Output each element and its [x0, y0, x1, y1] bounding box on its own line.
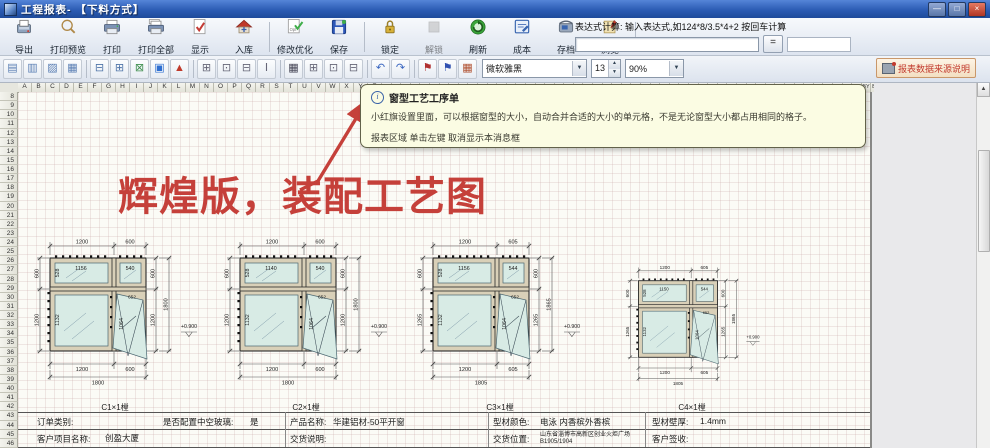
row-header-40[interactable]: 40 — [0, 384, 18, 393]
svg-text:1150: 1150 — [659, 287, 669, 292]
svg-text:600: 600 — [125, 367, 134, 373]
chevron-down-icon[interactable]: ▼ — [572, 61, 586, 76]
unlock-icon — [424, 17, 444, 42]
svg-text:652: 652 — [703, 310, 710, 315]
svg-text:1200: 1200 — [225, 314, 231, 326]
print-icon — [102, 17, 122, 42]
column-header-N[interactable]: N — [200, 82, 214, 92]
row-header-37[interactable]: 37 — [0, 357, 18, 366]
font-size-value: 13 — [592, 60, 608, 77]
svg-text:1265: 1265 — [721, 326, 726, 337]
svg-text:600: 600 — [341, 269, 347, 278]
save-button[interactable]: 保存 — [317, 19, 361, 55]
column-header-W[interactable]: W — [326, 82, 340, 92]
expression-calculator: 表达式计算: 输入表达式,如124*8/3.5*4+2 按回车计算 = — [575, 20, 983, 54]
tooltip-title: 窗型工艺工序单 — [389, 90, 459, 105]
svg-text:1800: 1800 — [164, 298, 170, 310]
workspace-background — [874, 82, 977, 448]
row-header-23[interactable]: 23 — [0, 229, 18, 238]
row-header-12[interactable]: 12 — [0, 129, 18, 138]
toolbar-button-label: 入库 — [235, 43, 253, 56]
column-header-E[interactable]: E — [74, 82, 88, 92]
report-data-source-button[interactable]: 报表数据来源说明 — [876, 58, 976, 78]
unlock-button[interactable]: 解锁 — [412, 19, 456, 55]
svg-text:600: 600 — [315, 240, 324, 246]
row-header-32[interactable]: 32 — [0, 311, 18, 320]
format-toolbar: ▤▥▨▦⊟⊞⊠▣▲⊞⊡⊟Ⅰ▦⊞⊡⊟↶↷⚑⚑▦微软雅黑▼13▲▼90%▼ — [0, 55, 990, 83]
order-field-label: 是否配置中空玻璃: — [163, 416, 233, 428]
flag-marker-icon[interactable]: ▲ — [170, 59, 189, 79]
row-header-44[interactable]: 44 — [0, 421, 18, 430]
row-header-15[interactable]: 15 — [0, 156, 18, 165]
svg-text:1265: 1265 — [534, 314, 540, 326]
lock-button[interactable]: 锁定 — [368, 19, 412, 55]
table-border — [488, 412, 489, 447]
svg-text:1156: 1156 — [458, 266, 469, 272]
window-drawing-4: 1200605600126560012651865+0.900120060518… — [600, 256, 784, 401]
svg-text:528: 528 — [438, 269, 444, 278]
table-border — [285, 412, 286, 447]
window-controls: — □ × — [928, 2, 986, 17]
close-button[interactable]: × — [968, 2, 986, 17]
toolbar-separator — [86, 60, 87, 78]
svg-text:1064: 1064 — [695, 330, 700, 340]
column-header-P[interactable]: P — [228, 82, 242, 92]
svg-text:605: 605 — [508, 367, 517, 373]
toolbar-button-label: 成本 — [513, 43, 531, 56]
equals-button[interactable]: = — [763, 35, 783, 53]
row-header-36[interactable]: 36 — [0, 348, 18, 357]
scrollbar-thumb[interactable] — [978, 150, 990, 252]
zoom-select-value: 90% — [629, 64, 647, 74]
row-header-8[interactable]: 8 — [0, 92, 18, 101]
minimize-button[interactable]: — — [928, 2, 946, 17]
svg-text:1132: 1132 — [642, 327, 647, 337]
toolbar-button-label: 刷新 — [469, 43, 487, 56]
window-process-tooltip[interactable]: i 窗型工艺工序单 小红旗设置里面，可以根据窗型的大小，自动合并合适的大小的单元… — [360, 84, 866, 148]
row-header-10[interactable]: 10 — [0, 110, 18, 119]
merge-across-icon[interactable]: ⊞ — [197, 59, 216, 79]
data-source-icon — [882, 63, 895, 74]
column-header-F[interactable]: F — [88, 82, 102, 92]
border-all-icon[interactable]: ⊞ — [304, 59, 323, 79]
print-all-icon — [146, 17, 166, 42]
chevron-down-icon[interactable]: ▼ — [669, 61, 683, 76]
optimize-button[interactable]: Opt修改优化 — [273, 19, 317, 55]
order-field-label: 产品名称: — [290, 416, 326, 428]
column-header-I[interactable]: I — [130, 82, 144, 92]
expression-caption: 表达式计算: 输入表达式,如124*8/3.5*4+2 按回车计算 — [575, 20, 983, 33]
row-headers: 8910111213141516171819202122232425262728… — [0, 92, 18, 448]
svg-text:1805: 1805 — [673, 381, 684, 386]
tooltip-line1: 小红旗设置里面，可以根据窗型的大小，自动合并合适的大小的单元格，不是无论窗型大小… — [371, 110, 855, 123]
svg-text:1200: 1200 — [35, 314, 41, 326]
svg-text:1865: 1865 — [547, 298, 553, 310]
tooltip-line2: 报表区域 单击左键 取消显示本消息框 — [371, 131, 855, 144]
svg-text:600: 600 — [225, 269, 231, 278]
order-field-label: 型材颜色: — [493, 416, 529, 428]
svg-text:1200: 1200 — [266, 367, 278, 373]
blue-flag-icon[interactable]: ⚑ — [438, 59, 457, 79]
order-field-label: 交货说明: — [290, 433, 326, 445]
red-annotation-text: 辉煌版，装配工艺图 — [118, 164, 487, 222]
svg-text:1200: 1200 — [151, 314, 157, 326]
order-field-value: 创盈大厦 — [105, 432, 139, 444]
row-header-21[interactable]: 21 — [0, 211, 18, 220]
column-header-K[interactable]: K — [158, 82, 172, 92]
cost-icon — [512, 17, 532, 42]
svg-text:1132: 1132 — [245, 314, 251, 325]
svg-text:605: 605 — [508, 240, 517, 246]
svg-text:1800: 1800 — [92, 381, 104, 387]
svg-text:652: 652 — [128, 295, 136, 301]
toolbar-separator — [364, 22, 365, 52]
svg-text:600: 600 — [534, 269, 540, 278]
column-header-D[interactable]: D — [60, 82, 74, 92]
column-header-M[interactable]: M — [186, 82, 200, 92]
svg-text:605: 605 — [701, 265, 709, 270]
expression-result-field[interactable] — [787, 37, 851, 52]
svg-text:1800: 1800 — [282, 381, 294, 387]
cost-button[interactable]: 成本 — [500, 19, 544, 55]
svg-text:528: 528 — [642, 289, 647, 297]
palette-icon[interactable]: ▦ — [458, 59, 477, 79]
column-header-C[interactable]: C — [46, 82, 60, 92]
expression-input[interactable] — [575, 37, 759, 52]
refresh-icon — [468, 17, 488, 42]
toolbar-button-label: 打印预览 — [50, 43, 86, 56]
column-header-Q[interactable]: Q — [242, 82, 256, 92]
toolbar-separator — [367, 60, 368, 78]
print-preview-icon — [58, 17, 78, 42]
svg-text:540: 540 — [126, 266, 135, 272]
column-header-U[interactable]: U — [298, 82, 312, 92]
svg-text:+0.900: +0.900 — [181, 324, 197, 330]
app-window: 工程报表- 【下料方式】 — □ × 导出打印预览打印打印全部显示入库Opt修改… — [0, 0, 990, 448]
border-outer-icon[interactable]: ⊡ — [324, 59, 343, 79]
row-header-46[interactable]: 46 — [0, 439, 18, 448]
svg-text:1200: 1200 — [459, 240, 471, 246]
svg-text:1156: 1156 — [75, 266, 86, 272]
display-button[interactable]: 显示 — [178, 19, 222, 55]
info-icon: i — [371, 91, 384, 104]
maximize-button[interactable]: □ — [948, 2, 966, 17]
column-header-O[interactable]: O — [214, 82, 228, 92]
font-family-select[interactable]: 微软雅黑▼ — [482, 59, 587, 78]
toolbar-button-label: 解锁 — [425, 43, 443, 56]
fit-rows-icon[interactable]: ▦ — [63, 59, 82, 79]
toolbar-separator — [193, 60, 194, 78]
svg-text:600: 600 — [35, 269, 41, 278]
column-header-X[interactable]: X — [340, 82, 354, 92]
toolbar-button-label: 导出 — [15, 43, 33, 56]
toolbar-button-label: 锁定 — [381, 43, 399, 56]
svg-text:600: 600 — [721, 289, 726, 297]
svg-text:1265: 1265 — [418, 314, 424, 326]
insert-sheet-icon[interactable]: ⊟ — [90, 59, 109, 79]
row-header-30[interactable]: 30 — [0, 293, 18, 302]
column-header-G[interactable]: G — [102, 82, 116, 92]
zoom-select[interactable]: 90%▼ — [625, 59, 684, 78]
column-header-T[interactable]: T — [284, 82, 298, 92]
row-header-20[interactable]: 20 — [0, 202, 18, 211]
table-grid-icon[interactable]: ▦ — [284, 59, 303, 79]
row-header-31[interactable]: 31 — [0, 302, 18, 311]
lock-icon — [380, 17, 400, 42]
refresh-button[interactable]: 刷新 — [456, 19, 500, 55]
redo-icon[interactable]: ↷ — [391, 59, 410, 79]
row-header-19[interactable]: 19 — [0, 192, 18, 201]
export-icon — [14, 17, 34, 42]
app-icon — [4, 3, 17, 16]
column-header-A[interactable]: A — [18, 82, 32, 92]
svg-text:544: 544 — [509, 266, 518, 272]
row-header-26[interactable]: 26 — [0, 256, 18, 265]
export-button[interactable]: 导出 — [2, 19, 46, 55]
svg-text:600: 600 — [418, 269, 424, 278]
svg-text:1200: 1200 — [660, 265, 671, 270]
column-header-H[interactable]: H — [116, 82, 130, 92]
svg-text:1200: 1200 — [459, 367, 471, 373]
svg-text:652: 652 — [318, 295, 326, 301]
font-family-select-value: 微软雅黑 — [486, 62, 522, 75]
window-title: 工程报表- 【下料方式】 — [21, 2, 144, 17]
toolbar-button-label: 修改优化 — [277, 43, 313, 56]
order-field-value: 是 — [250, 416, 259, 428]
svg-text:1800: 1800 — [354, 298, 360, 310]
svg-text:+0.900: +0.900 — [746, 334, 760, 339]
merge-down-icon[interactable]: ⊡ — [217, 59, 236, 79]
row-header-16[interactable]: 16 — [0, 165, 18, 174]
spin-down-icon[interactable]: ▼ — [609, 69, 620, 78]
svg-text:1200: 1200 — [341, 314, 347, 326]
column-header-BZ[interactable]: BZ — [871, 82, 874, 92]
select-region-icon[interactable]: ▣ — [150, 59, 169, 79]
row-header-13[interactable]: 13 — [0, 138, 18, 147]
row-header-18[interactable]: 18 — [0, 183, 18, 192]
svg-text:1064: 1064 — [119, 318, 125, 330]
data-source-label: 报表数据来源说明 — [898, 62, 970, 75]
svg-text:1200: 1200 — [266, 240, 278, 246]
red-flag-icon[interactable]: ⚑ — [418, 59, 437, 79]
row-header-14[interactable]: 14 — [0, 147, 18, 156]
row-header-34[interactable]: 34 — [0, 329, 18, 338]
row-header-29[interactable]: 29 — [0, 284, 18, 293]
scroll-up-button[interactable]: ▲ — [977, 82, 990, 97]
column-header-L[interactable]: L — [172, 82, 186, 92]
align-center-icon[interactable]: ▥ — [23, 59, 42, 79]
window-drawing-2: 1200600600120060012001800+0.900120060018… — [210, 228, 400, 403]
warehouse-button[interactable]: 入库 — [222, 19, 266, 55]
row-header-24[interactable]: 24 — [0, 238, 18, 247]
svg-text:1805: 1805 — [475, 381, 487, 387]
column-header-B[interactable]: B — [32, 82, 46, 92]
row-header-38[interactable]: 38 — [0, 366, 18, 375]
toolbar-button-label: 打印 — [103, 43, 121, 56]
table-border — [18, 412, 870, 413]
svg-text:540: 540 — [316, 266, 325, 272]
row-header-39[interactable]: 39 — [0, 375, 18, 384]
row-header-35[interactable]: 35 — [0, 338, 18, 347]
row-header-41[interactable]: 41 — [0, 393, 18, 402]
row-header-45[interactable]: 45 — [0, 430, 18, 439]
svg-text:+0.900: +0.900 — [564, 324, 580, 330]
order-field-label: 客户签收: — [652, 433, 688, 445]
row-header-17[interactable]: 17 — [0, 174, 18, 183]
svg-text:+0.900: +0.900 — [371, 324, 387, 330]
order-field-value: 电泳 内香槟外香槟 — [540, 416, 610, 428]
row-header-9[interactable]: 9 — [0, 101, 18, 110]
row-header-33[interactable]: 33 — [0, 320, 18, 329]
svg-text:1200: 1200 — [76, 240, 88, 246]
page-setup-icon[interactable]: ⊞ — [110, 59, 129, 79]
save-icon — [329, 17, 349, 42]
svg-text:1200: 1200 — [660, 370, 671, 375]
column-header-J[interactable]: J — [144, 82, 158, 92]
window-drawing-3: 1200605600126560012651865+0.900120060518… — [400, 228, 596, 403]
toolbar-separator — [269, 22, 270, 52]
row-header-43[interactable]: 43 — [0, 411, 18, 420]
toolbar-button-label: 存档 — [557, 43, 575, 56]
svg-text:528: 528 — [55, 269, 61, 278]
svg-text:1132: 1132 — [55, 314, 61, 325]
toolbar-button-label: 保存 — [330, 43, 348, 56]
row-header-27[interactable]: 27 — [0, 265, 18, 274]
column-header-R[interactable]: R — [256, 82, 270, 92]
toolbar-separator — [280, 60, 281, 78]
order-field-value: 华建铝材-50平开窗 — [333, 416, 405, 428]
table-border — [18, 429, 870, 430]
svg-text:600: 600 — [125, 240, 134, 246]
svg-text:1140: 1140 — [265, 266, 276, 272]
order-field-label: 客户项目名称: — [37, 433, 90, 445]
svg-text:605: 605 — [701, 370, 709, 375]
svg-text:600: 600 — [151, 269, 157, 278]
print-button[interactable]: 打印 — [90, 19, 134, 55]
column-header-S[interactable]: S — [270, 82, 284, 92]
order-field-label: 型材壁厚: — [652, 416, 688, 428]
split-cell-icon[interactable]: ⊟ — [237, 59, 256, 79]
font-size-stepper[interactable]: 13▲▼ — [591, 59, 621, 78]
svg-text:1200: 1200 — [76, 367, 88, 373]
row-header-11[interactable]: 11 — [0, 119, 18, 128]
row-height-icon[interactable]: Ⅰ — [257, 59, 276, 79]
svg-text:1265: 1265 — [625, 326, 630, 337]
row-header-22[interactable]: 22 — [0, 220, 18, 229]
optimize-icon: Opt — [285, 17, 305, 42]
spin-up-icon[interactable]: ▲ — [609, 60, 620, 69]
order-field-label: 订单类别: — [37, 416, 73, 428]
vertical-scrollbar[interactable]: ▲ — [976, 82, 990, 448]
print-preview-button[interactable]: 打印预览 — [46, 19, 90, 55]
titlebar: 工程报表- 【下料方式】 — □ × — [0, 0, 990, 18]
row-header-28[interactable]: 28 — [0, 275, 18, 284]
svg-text:600: 600 — [625, 289, 630, 297]
svg-text:652: 652 — [511, 295, 519, 301]
clear-cells-icon[interactable]: ⊠ — [130, 59, 149, 79]
order-field-label: 交货位置: — [493, 433, 529, 445]
archive-icon — [556, 17, 576, 42]
window-drawing-1: 1200600600120060012001800+0.900120060018… — [24, 228, 206, 403]
row-header-25[interactable]: 25 — [0, 247, 18, 256]
toolbar-separator — [414, 60, 415, 78]
toolbar-button-label: 打印全部 — [138, 43, 174, 56]
border-inner-icon[interactable]: ⊟ — [344, 59, 363, 79]
row-header-42[interactable]: 42 — [0, 402, 18, 411]
align-left-icon[interactable]: ▤ — [3, 59, 22, 79]
svg-text:1064: 1064 — [309, 318, 315, 330]
undo-icon[interactable]: ↶ — [371, 59, 390, 79]
svg-text:544: 544 — [701, 287, 709, 292]
align-right-icon[interactable]: ▨ — [43, 59, 62, 79]
order-field-value: 1.4mm — [700, 416, 726, 426]
svg-text:528: 528 — [245, 269, 251, 278]
svg-text:1132: 1132 — [438, 314, 444, 325]
toolbar-button-label: 显示 — [191, 43, 209, 56]
warehouse-icon — [234, 17, 254, 42]
svg-text:1064: 1064 — [502, 318, 508, 330]
svg-text:600: 600 — [315, 367, 324, 373]
table-border — [18, 447, 870, 448]
svg-text:1865: 1865 — [731, 313, 736, 324]
print-all-button[interactable]: 打印全部 — [134, 19, 178, 55]
order-field-value: 山东省淄博市高新区创业火炬广场B1905/1904 — [540, 432, 658, 445]
display-icon — [190, 17, 210, 42]
column-header-V[interactable]: V — [312, 82, 326, 92]
